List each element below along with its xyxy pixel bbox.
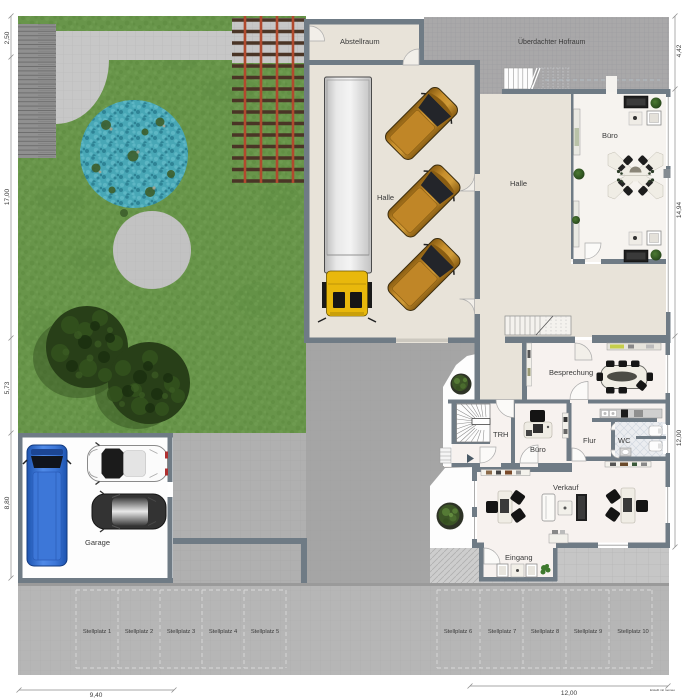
svg-text:Stellplatz 9: Stellplatz 9 xyxy=(574,629,602,635)
svg-text:Stellplatz 8: Stellplatz 8 xyxy=(531,629,559,635)
svg-text:Stellplatz 7: Stellplatz 7 xyxy=(488,629,516,635)
svg-text:8,80: 8,80 xyxy=(4,496,11,509)
svg-text:Büro: Büro xyxy=(530,445,546,454)
svg-text:5,73: 5,73 xyxy=(4,381,11,394)
svg-text:WC: WC xyxy=(618,436,631,445)
svg-text:Halle: Halle xyxy=(377,193,394,202)
svg-text:Stellplatz 3: Stellplatz 3 xyxy=(167,629,195,635)
svg-text:Stellplatz 4: Stellplatz 4 xyxy=(209,629,238,635)
svg-text:Stellplatz 2: Stellplatz 2 xyxy=(125,629,153,635)
svg-text:Stellplatz 6: Stellplatz 6 xyxy=(444,629,472,635)
svg-text:Überdachter Hofraum: Überdachter Hofraum xyxy=(518,38,585,46)
svg-text:Eingang: Eingang xyxy=(505,553,533,562)
svg-text:Stellplatz 10: Stellplatz 10 xyxy=(617,629,649,635)
svg-text:17,00: 17,00 xyxy=(4,188,11,205)
svg-text:Verkauf: Verkauf xyxy=(553,483,579,492)
svg-text:9,40: 9,40 xyxy=(90,692,103,699)
svg-text:12,00: 12,00 xyxy=(676,429,683,446)
svg-text:Stellplatz 5: Stellplatz 5 xyxy=(251,629,279,635)
svg-text:Flur: Flur xyxy=(583,436,596,445)
svg-text:4,42: 4,42 xyxy=(676,44,683,57)
svg-text:Abstellraum: Abstellraum xyxy=(340,37,380,46)
svg-text:TRH: TRH xyxy=(493,430,508,439)
svg-text:2,50: 2,50 xyxy=(4,31,11,44)
svg-text:Erstellt mit roomeo: Erstellt mit roomeo xyxy=(650,688,675,692)
svg-text:Büro: Büro xyxy=(602,131,618,140)
svg-text:14,94: 14,94 xyxy=(676,201,683,218)
svg-text:Stellplatz 1: Stellplatz 1 xyxy=(83,629,111,635)
svg-text:Besprechung: Besprechung xyxy=(549,368,593,377)
svg-text:12,00: 12,00 xyxy=(561,690,578,697)
svg-text:Garage: Garage xyxy=(85,538,110,547)
svg-text:Halle: Halle xyxy=(510,179,527,188)
